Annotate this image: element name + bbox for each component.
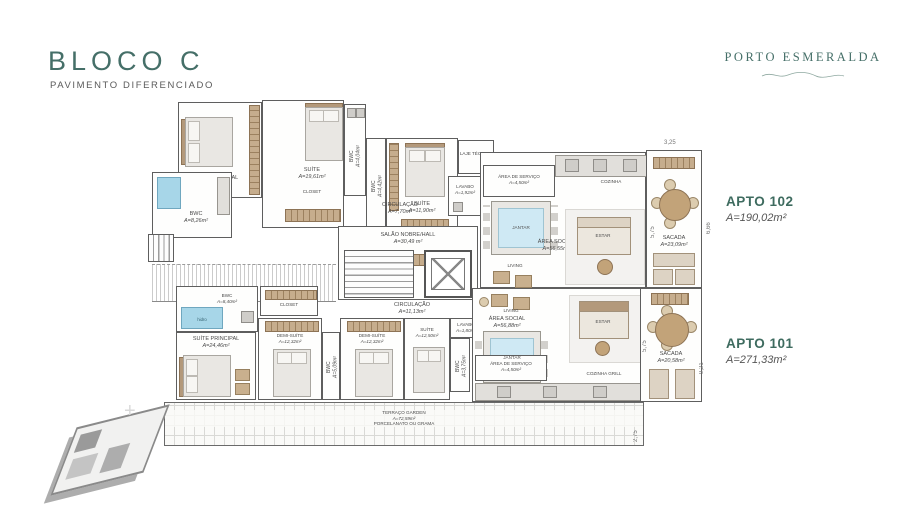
room-bwc-375: BWC A=3,75m² <box>450 338 470 392</box>
living-label: LIVING <box>491 308 531 314</box>
room-label: SACADA A=20,58m² <box>641 351 701 365</box>
room-label: DEMI-SUÍTE A=12,32m² <box>341 333 403 344</box>
cooktop-icon <box>565 159 579 172</box>
room-area-social-102: COZINHA ÁREA DE SERVIÇO A=4,50m² JANTAR … <box>480 152 646 288</box>
room-label: BWC A=5,09m² <box>326 337 339 397</box>
dimension-label: 5,75 <box>642 322 648 352</box>
wardrobe-icon <box>265 321 319 332</box>
entry-stairs-icon <box>148 234 174 262</box>
room-suite-1250: SUÍTE A=12,50m² <box>404 318 450 400</box>
apto-102-label-block: APTO 102 A=190,02m² <box>726 194 876 224</box>
room-sacada-101: SACADA A=20,58m² <box>640 288 702 402</box>
planter-icon <box>651 293 689 305</box>
brand-tagline-script <box>718 67 888 85</box>
room-closet-101: CLOSET <box>260 286 318 316</box>
room-label: ÁREA DE SERVIÇO A=4,50m² <box>484 174 554 185</box>
room-bwc-404: BWC A=4,04m² <box>344 104 366 196</box>
bed-icon <box>183 355 231 397</box>
label-circulacao-101: CIRCULAÇÃO A=11,13m² <box>352 302 472 316</box>
vanity-icon <box>217 177 230 215</box>
estar-label: ESTAR <box>585 233 621 239</box>
isometric-plan-thumbnail: + <box>48 398 178 498</box>
dimension-label: 2,75 <box>633 412 639 442</box>
sink-icon <box>347 108 356 118</box>
thumb-room-patch <box>99 443 130 473</box>
apto-101-label: APTO 101 <box>726 336 876 351</box>
room-label: SUÍTE A=12,50m² <box>405 327 449 338</box>
room-bwc-442: BWC A=4,42m² <box>366 138 386 230</box>
sofa-seat-icon <box>577 227 631 255</box>
isometric-slab <box>50 404 169 496</box>
closet-label: CLOSET <box>281 189 343 195</box>
closet-label: CLOSET <box>261 302 317 308</box>
hidro-tub-icon: hidro <box>181 307 223 329</box>
page-subtitle: PAVIMENTO DIFERENCIADO <box>50 80 214 91</box>
room-bwc-840: BWC A=8,40m² hidro <box>176 286 258 332</box>
wardrobe-icon <box>285 209 341 222</box>
grill-icon <box>593 386 607 398</box>
planter-icon <box>653 157 695 169</box>
thumb-room-patch <box>65 453 98 480</box>
room-label: LAVABO A=1,92m² <box>449 184 481 195</box>
room-label: ÁREA DE SERVIÇO A=4,50m² <box>476 361 546 372</box>
room-label: DEMI-SUÍTE A=12,32m² <box>259 333 321 344</box>
room-label: BWC A=8,40m² <box>201 293 253 304</box>
sparkle-icon: + <box>124 400 136 423</box>
apto-102-label: APTO 102 <box>726 194 876 209</box>
dimension-label: 5,75 <box>650 208 656 238</box>
room-area-servico-102: ÁREA DE SERVIÇO A=4,50m² <box>483 165 555 197</box>
wardrobe-icon <box>347 321 401 332</box>
dining-chairs-icon <box>483 205 490 249</box>
outdoor-chair-icon <box>675 269 695 285</box>
bed-icon <box>185 117 233 167</box>
room-suite-principal-101: SUÍTE PRINCIPAL A=24,46m² <box>176 332 256 400</box>
stairs-icon <box>344 250 414 298</box>
apto-101-label-block: APTO 101 A=271,33m² <box>726 336 876 366</box>
armchair-icon <box>235 383 250 395</box>
sofa-seat-icon <box>579 311 629 339</box>
brand-logo: PORTO ESMERALDA <box>718 50 888 85</box>
lounger-icon <box>675 369 695 399</box>
armchair-icon <box>515 275 532 288</box>
hidro-label: hidro <box>182 317 222 322</box>
cozinha-grill-label: COZINHA GRILL <box>569 371 639 377</box>
elevator-cab-icon <box>431 258 465 290</box>
thumb-room-patch <box>74 429 102 453</box>
shower-icon <box>157 177 181 209</box>
elevator-icon <box>424 250 472 298</box>
dimension-label: 9,21 <box>699 344 705 374</box>
room-bwc-509: BWC A=5,09m² <box>322 332 340 400</box>
side-table-icon <box>479 297 489 307</box>
cozinha-label: COZINHA <box>581 179 641 185</box>
toilet-icon <box>241 311 254 323</box>
room-demi-suite-2: DEMI-SUÍTE A=12,32m² <box>340 318 404 400</box>
sink-icon <box>593 159 607 172</box>
coffee-table-icon <box>597 259 613 275</box>
room-terraco-garden: TERRAÇO GARDEN A=72,59m² PORCELANATO OU … <box>164 402 644 446</box>
round-table-icon <box>655 313 689 347</box>
room-label: SALÃO NOBRE/HALL A=30,49 m² <box>339 232 477 246</box>
armchair-icon <box>491 294 508 307</box>
room-label: SUÍTE PRINCIPAL A=24,46m² <box>177 336 255 350</box>
bed-icon <box>355 349 393 397</box>
living-label: LIVING <box>495 263 535 269</box>
estar-label: ESTAR <box>585 319 621 325</box>
coffee-table-icon <box>595 341 610 356</box>
room-label: TERRAÇO GARDEN A=72,59m² PORCELANATO OU … <box>165 410 643 427</box>
jantar-label: JANTAR <box>492 225 550 230</box>
room-demi-suite-1: DEMI-SUÍTE A=12,32m² <box>258 318 322 400</box>
label-circulacao-102: CIRCULAÇÃO A=7,70m² <box>340 202 460 216</box>
area-social-label: ÁREA SOCIAL A=56,88m² <box>475 316 539 330</box>
outdoor-sofa-icon <box>653 253 695 267</box>
bed-icon <box>405 147 445 197</box>
round-table-icon <box>659 189 691 221</box>
apto-101-area: A=271,33m² <box>726 354 876 366</box>
sink-icon <box>497 386 511 398</box>
cooktop-icon <box>543 386 557 398</box>
dimension-label: 3,25 <box>664 140 676 146</box>
apto-102-area: A=190,02m² <box>726 212 876 224</box>
page-title: BLOCO C <box>48 46 205 77</box>
lounger-icon <box>649 369 669 399</box>
armchair-icon <box>493 271 510 284</box>
bed-icon <box>305 107 343 161</box>
room-label: SUÍTE A=19,61m² <box>281 167 343 181</box>
armchair-icon <box>235 369 250 381</box>
room-bwc-826: BWC A=8,26m² <box>152 172 232 238</box>
bed-icon <box>273 349 311 397</box>
wardrobe-icon <box>265 290 317 300</box>
bed-icon <box>413 347 445 393</box>
brand-name: PORTO ESMERALDA <box>718 50 888 65</box>
jantar-label: JANTAR <box>484 355 540 360</box>
toilet-icon <box>356 108 365 118</box>
dimension-label: 6,66 <box>706 204 712 234</box>
room-area-social-101: LIVING ÁREA SOCIAL A=56,88m² JANTAR ESTA… <box>472 288 646 402</box>
room-suite-102: SUÍTE A=19,61m² CLOSET <box>262 100 344 228</box>
page: BLOCO C PAVIMENTO DIFERENCIADO PORTO ESM… <box>0 0 900 506</box>
room-label: BWC A=3,75m² <box>455 343 468 389</box>
outdoor-chair-icon <box>653 269 673 285</box>
oven-icon <box>623 159 637 172</box>
room-label: BWC A=8,26m² <box>167 211 225 225</box>
room-label: BWC A=4,04m² <box>349 119 362 193</box>
